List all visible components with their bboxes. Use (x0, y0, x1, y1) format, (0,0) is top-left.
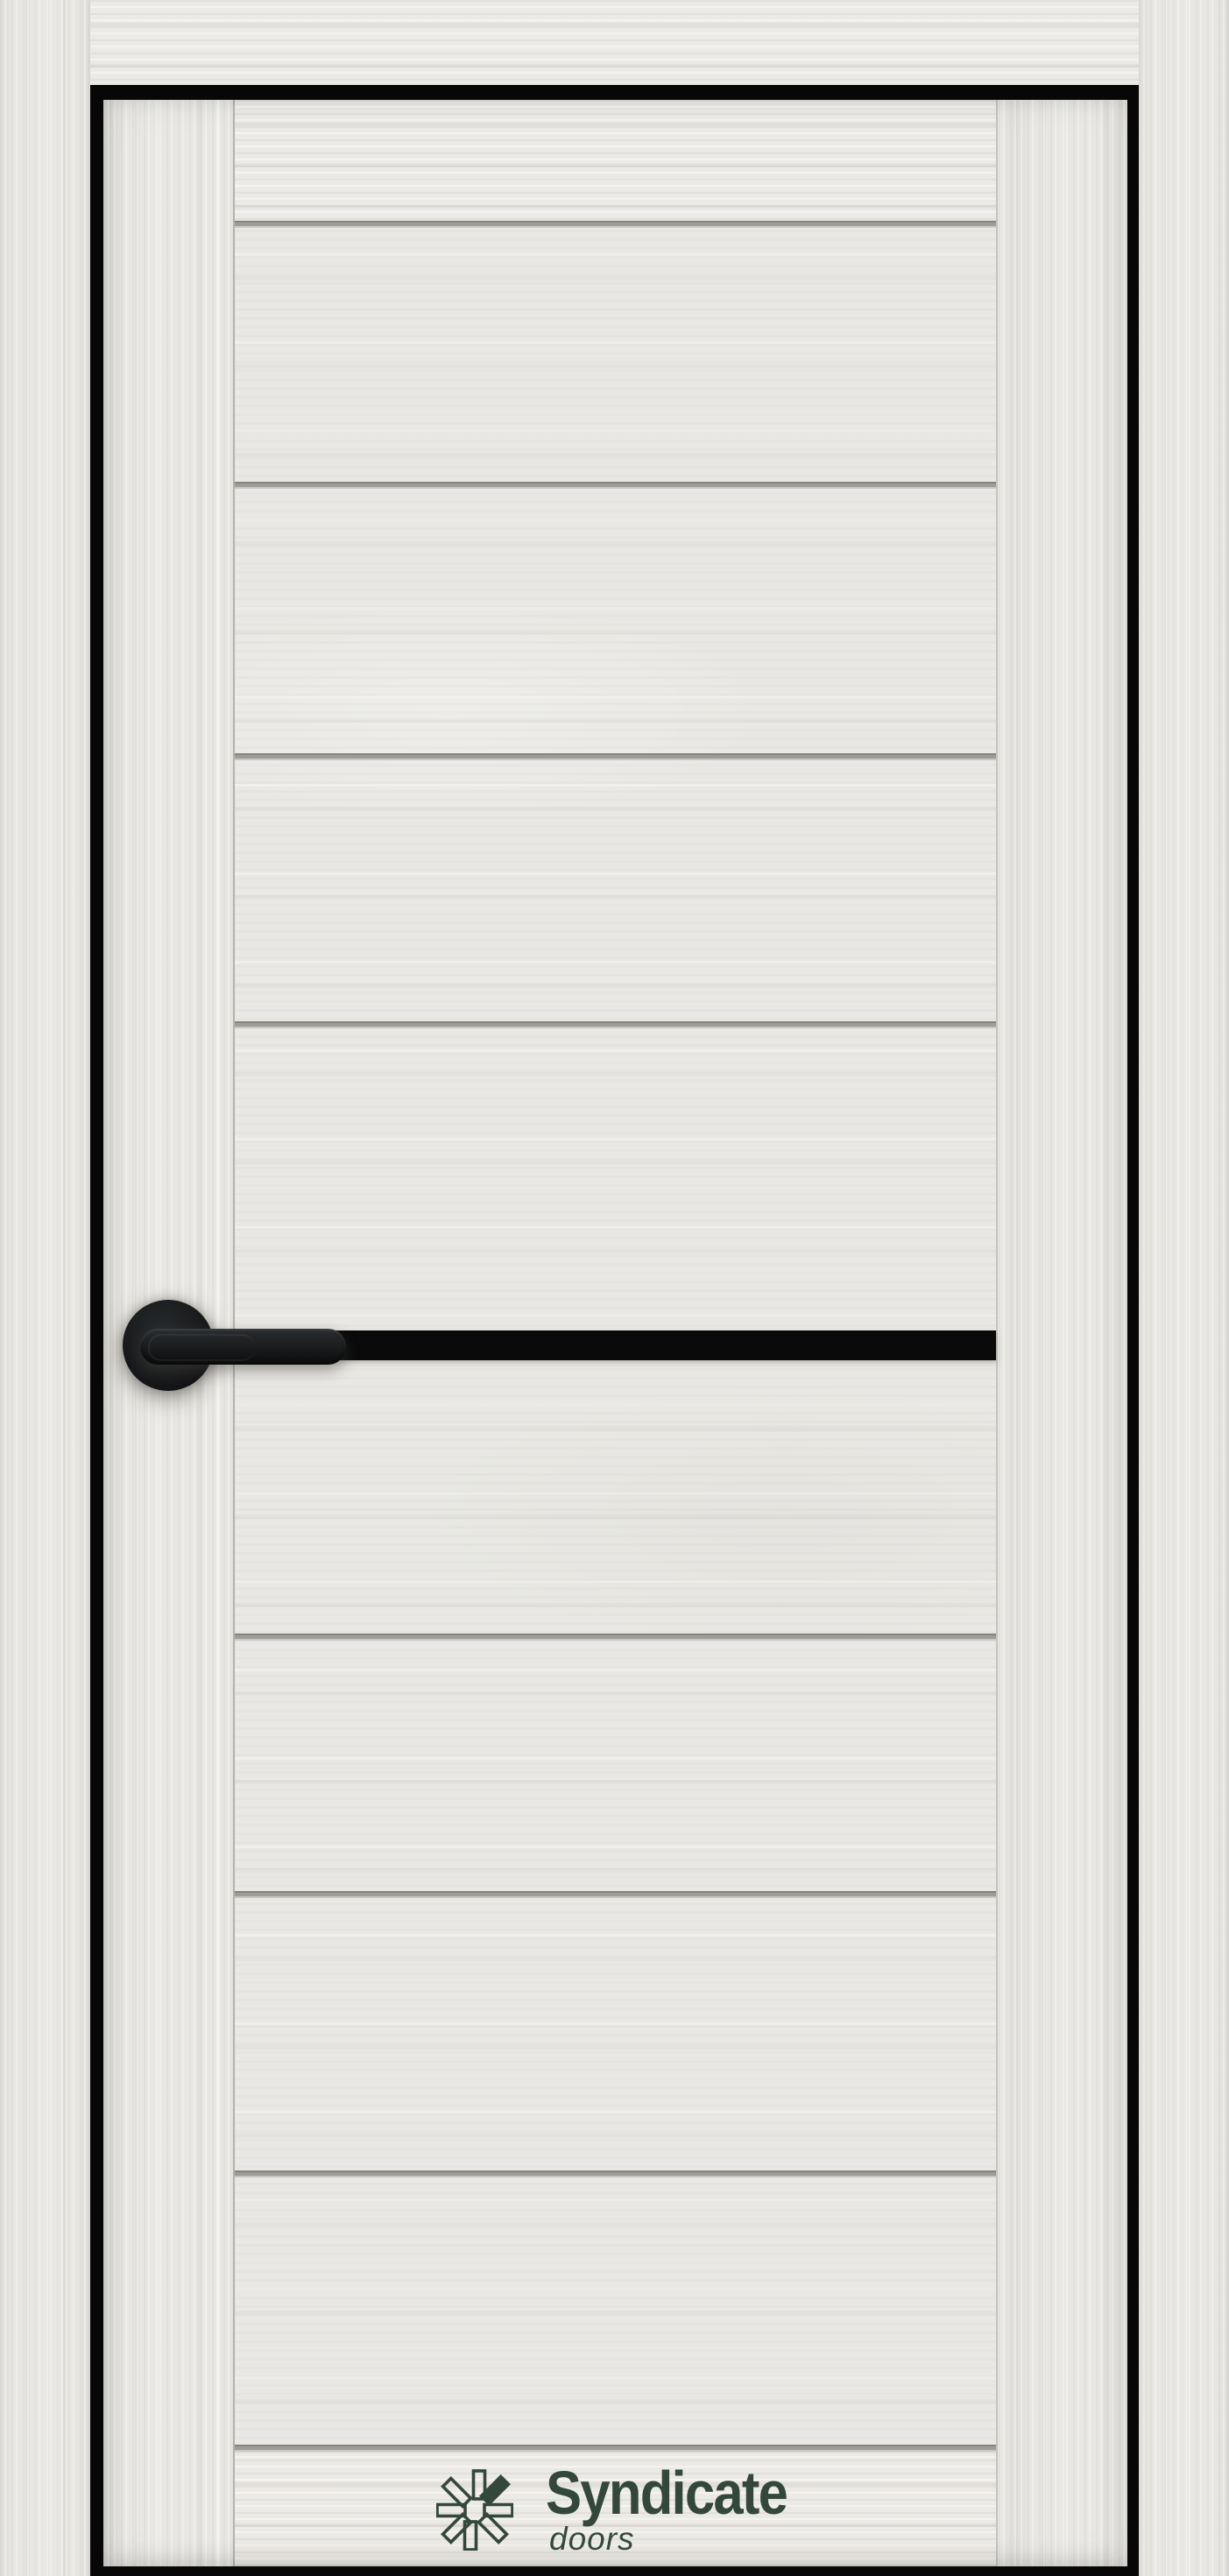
panel-groove (235, 1634, 996, 1641)
panel-groove (235, 221, 996, 228)
brand-logo: Syndicate doors (436, 2468, 901, 2556)
brand-tagline: doors (549, 2523, 635, 2555)
door-leaf: Syndicate doors (103, 100, 1127, 2566)
panel-groove (235, 1021, 996, 1028)
door-top-rail (235, 100, 996, 221)
brand-name: Syndicate (546, 2462, 787, 2523)
handle-lever (140, 1329, 346, 1365)
logo-petal (443, 2479, 471, 2507)
panel-groove (235, 482, 996, 489)
panel-groove (235, 2445, 996, 2452)
logo-petal (443, 2515, 471, 2543)
frame-left-jamb (0, 0, 90, 2576)
frame-right-jamb (1139, 0, 1229, 2576)
panel-groove (235, 753, 996, 760)
panel-groove (235, 1891, 996, 1898)
panel-groove (235, 2170, 996, 2177)
door-product-photo: Syndicate doors (0, 0, 1229, 2576)
pinwheel-logo-icon (436, 2468, 513, 2551)
black-glass-stripe (235, 1330, 996, 1360)
frame-header (90, 0, 1139, 85)
door-right-stile (996, 100, 1127, 2566)
door-center-panels (235, 100, 996, 2566)
logo-petal (479, 2515, 507, 2543)
